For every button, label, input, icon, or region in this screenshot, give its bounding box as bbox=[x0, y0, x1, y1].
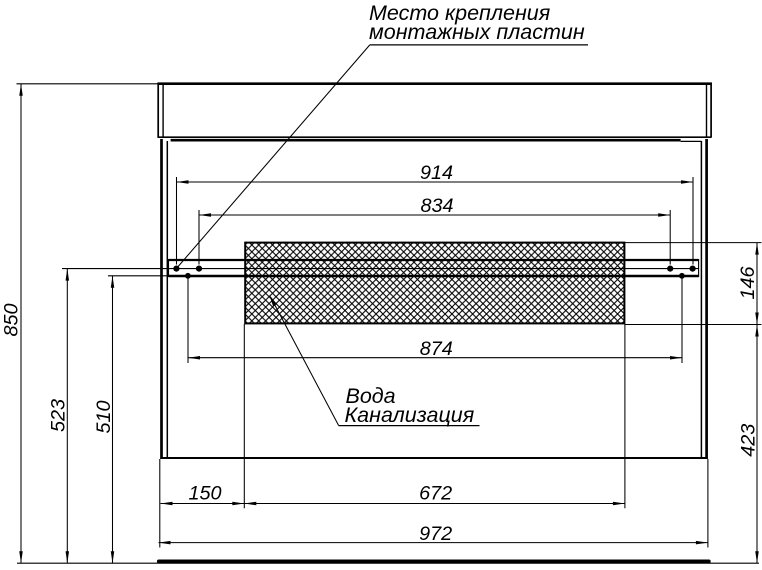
svg-text:423: 423 bbox=[738, 424, 760, 457]
svg-text:850: 850 bbox=[1, 303, 23, 336]
svg-text:972: 972 bbox=[419, 523, 452, 545]
svg-text:672: 672 bbox=[419, 483, 452, 505]
svg-text:523: 523 bbox=[48, 399, 70, 432]
svg-text:150: 150 bbox=[188, 483, 221, 505]
svg-text:834: 834 bbox=[420, 195, 453, 217]
svg-text:874: 874 bbox=[420, 338, 453, 360]
svg-text:914: 914 bbox=[420, 162, 453, 184]
svg-text:146: 146 bbox=[737, 266, 759, 299]
svg-text:монтажных пластин: монтажных пластин bbox=[369, 20, 585, 44]
svg-text:510: 510 bbox=[93, 400, 115, 433]
svg-text:Канализация: Канализация bbox=[345, 403, 475, 427]
